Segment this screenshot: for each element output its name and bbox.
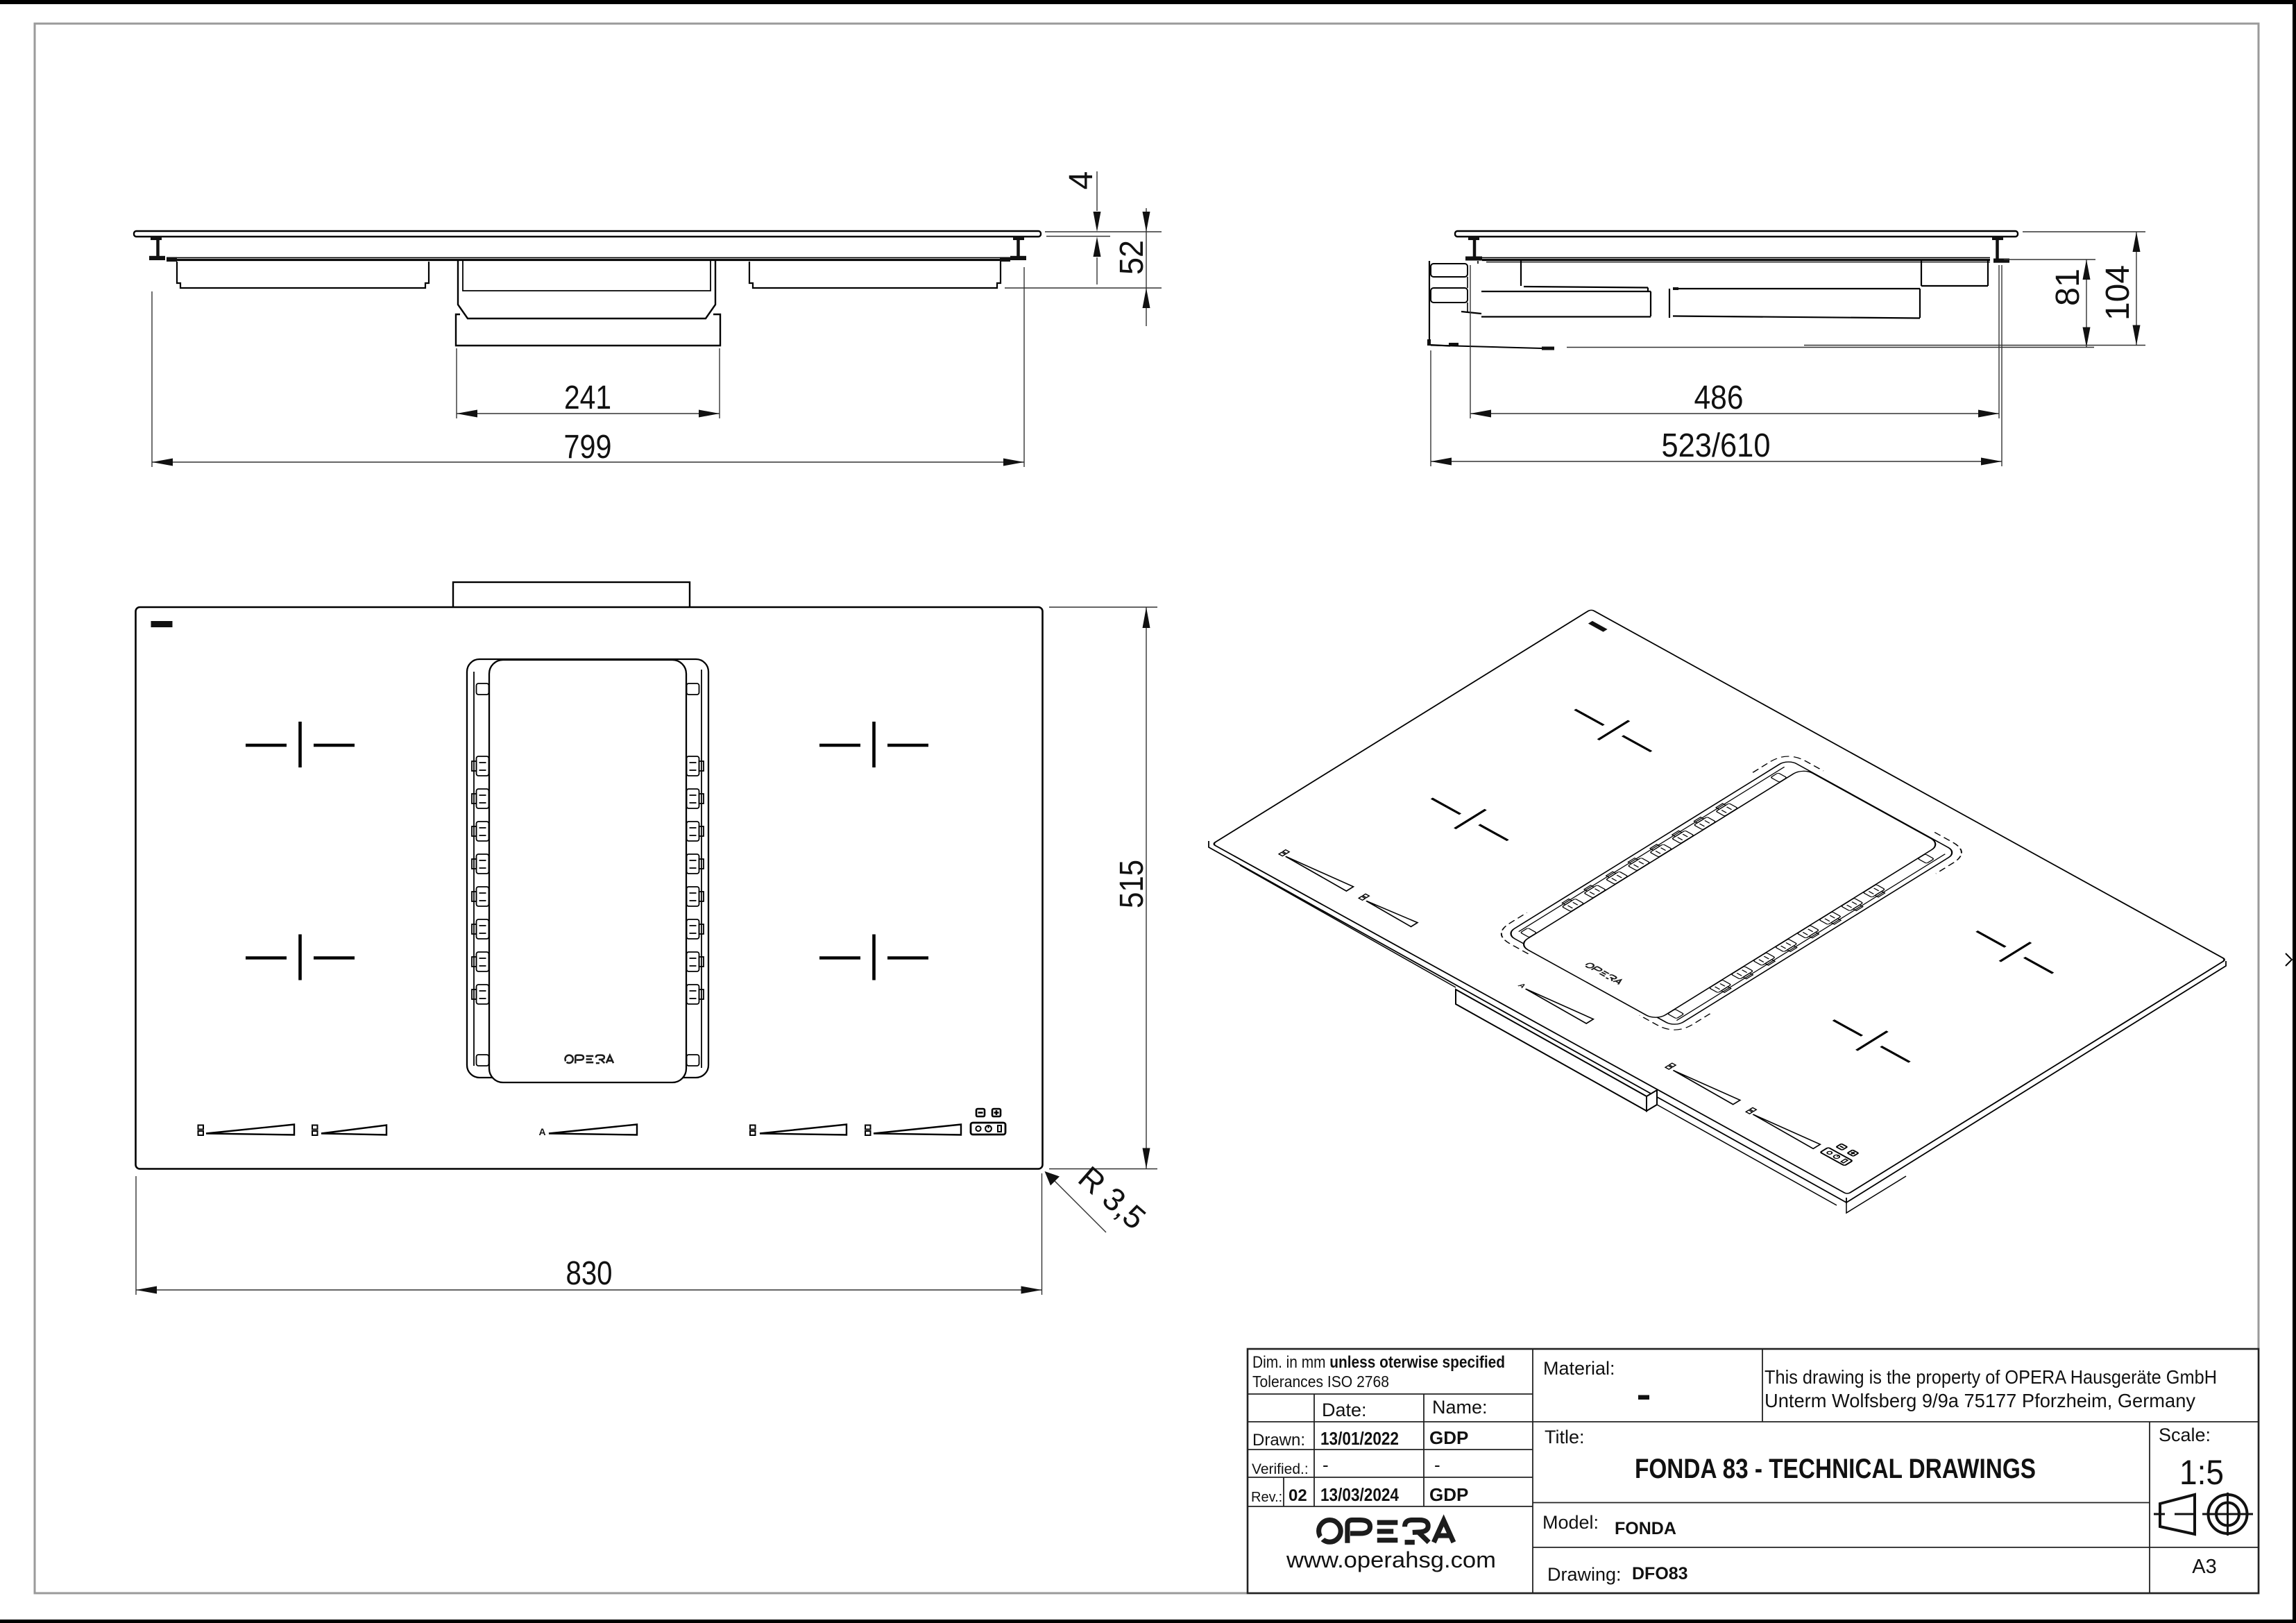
svg-text:DFO83: DFO83 xyxy=(1632,1564,1688,1583)
svg-text:-: - xyxy=(1434,1454,1440,1475)
svg-text:Drawn:: Drawn: xyxy=(1252,1431,1305,1450)
svg-text:Rev.:: Rev.: xyxy=(1251,1490,1282,1505)
svg-text:Scale:: Scale: xyxy=(2159,1425,2211,1445)
svg-text:13/03/2024: 13/03/2024 xyxy=(1320,1484,1399,1505)
svg-text:523/610: 523/610 xyxy=(1662,427,1771,464)
svg-text:GDP: GDP xyxy=(1429,1427,1468,1448)
svg-text:Title:: Title: xyxy=(1545,1427,1585,1447)
svg-text:This drawing is the property o: This drawing is the property of OPERA Ha… xyxy=(1764,1366,2217,1388)
svg-text:Drawing:: Drawing: xyxy=(1547,1564,1622,1585)
svg-text:www.operahsg.com: www.operahsg.com xyxy=(1286,1547,1496,1572)
svg-text:A3: A3 xyxy=(2192,1556,2216,1578)
svg-text:Material:: Material: xyxy=(1543,1358,1615,1379)
svg-text:1:5: 1:5 xyxy=(2179,1453,2224,1492)
svg-text:Verified.:: Verified.: xyxy=(1252,1461,1309,1477)
svg-text:Name:: Name: xyxy=(1432,1397,1488,1418)
svg-text:4: 4 xyxy=(1063,171,1100,190)
svg-text:799: 799 xyxy=(564,429,612,466)
svg-text:Model:: Model: xyxy=(1542,1512,1599,1533)
svg-text:Date:: Date: xyxy=(1322,1400,1367,1420)
svg-text:-: - xyxy=(1323,1454,1329,1475)
svg-text:02: 02 xyxy=(1289,1486,1307,1505)
svg-text:GDP: GDP xyxy=(1429,1484,1468,1505)
svg-text:FONDA: FONDA xyxy=(1615,1519,1676,1538)
svg-text:515: 515 xyxy=(1114,860,1150,908)
svg-text:Dim. in mm unless oterwise spe: Dim. in mm unless oterwise specified xyxy=(1252,1353,1505,1372)
svg-text:52: 52 xyxy=(1114,240,1150,275)
svg-text:104: 104 xyxy=(2100,265,2136,321)
svg-text:81: 81 xyxy=(2050,269,2086,306)
svg-text:241: 241 xyxy=(564,380,611,416)
svg-text:Unterm Wolfsberg 9/9a 75177 Pf: Unterm Wolfsberg 9/9a 75177 Pforzheim, G… xyxy=(1764,1390,2195,1411)
svg-text:Tolerances ISO 2768: Tolerances ISO 2768 xyxy=(1252,1373,1389,1391)
svg-text:13/01/2022: 13/01/2022 xyxy=(1320,1428,1399,1449)
svg-text:830: 830 xyxy=(566,1255,613,1292)
svg-text:FONDA 83 - TECHNICAL DRAWINGS: FONDA 83 - TECHNICAL DRAWINGS xyxy=(1635,1454,2036,1484)
svg-text:486: 486 xyxy=(1694,380,1744,416)
